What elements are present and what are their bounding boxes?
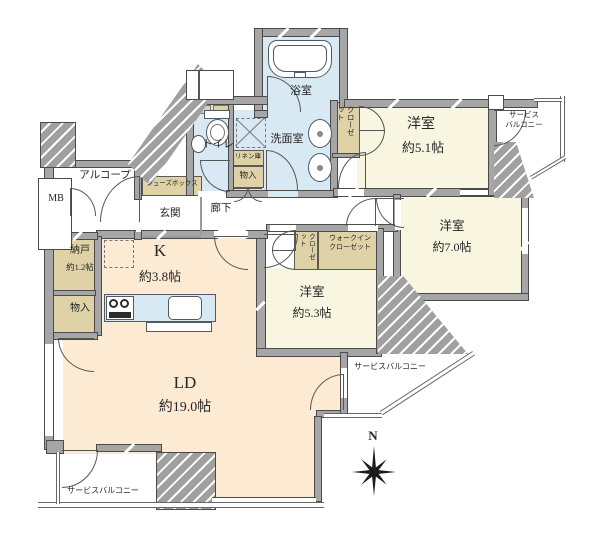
wall-segment <box>339 28 348 108</box>
wall-hatched <box>40 122 76 168</box>
linen-label: リネン庫 <box>233 153 263 161</box>
bathroom-label: 浴室 <box>278 84 324 98</box>
refrigerator-space <box>104 240 134 268</box>
kitchen-sink <box>168 296 202 320</box>
window <box>460 189 488 196</box>
entrance-label: 玄関 <box>146 207 194 221</box>
ld-floor <box>212 452 318 500</box>
bedroom70-size: 約7.0帖 <box>420 240 484 256</box>
balcony-tr-label: サービス バルコニー <box>494 110 554 130</box>
counter-shelf <box>146 322 212 332</box>
storage-left-label: 物入 <box>60 302 100 315</box>
bathtub-inner <box>273 45 327 72</box>
stove-grill <box>109 312 131 318</box>
wic-label: ウォークイン クローゼット <box>319 234 381 252</box>
wall-segment <box>314 416 322 502</box>
door-swing <box>248 188 262 202</box>
balcony-railing <box>534 98 562 102</box>
meter-box <box>38 178 72 250</box>
balcony-railing <box>38 502 324 508</box>
door-swing <box>234 188 248 202</box>
nando-label: 納戸 <box>60 244 100 257</box>
compass <box>346 444 402 500</box>
wash-basin-drain <box>317 131 323 137</box>
closet53-label: クローゼット <box>297 233 315 261</box>
ld-size: 約19.0帖 <box>140 399 230 417</box>
floor-plan: N 浴室 洗面室 トイレ リネン庫 物入 クローゼット 洋室 約5.1帖 サービ… <box>0 0 600 555</box>
wash-basin-drain <box>317 165 323 171</box>
meter-box-label: MB <box>40 192 72 205</box>
wall-segment <box>254 110 268 118</box>
balcony-mid-label: サービスバルコニー <box>332 362 448 372</box>
bedroom51-label: 洋室 <box>397 116 445 134</box>
kitchen-size: 約3.8帖 <box>125 269 195 286</box>
washroom-storage-label: 物入 <box>232 170 264 181</box>
bathtub-handle <box>294 72 306 78</box>
washroom-label: 洗面室 <box>260 132 314 146</box>
balcony-railing <box>530 155 566 179</box>
ld-label: LD <box>155 372 215 394</box>
door-swing <box>70 188 96 216</box>
kitchen-label: K <box>140 240 180 262</box>
balcony-railing <box>324 413 382 418</box>
balcony-door-jamb <box>488 95 504 110</box>
balcony-railing <box>380 351 475 415</box>
entrance-step <box>143 236 201 238</box>
wall-hatched <box>494 142 534 198</box>
window <box>44 344 54 436</box>
toilet-label: トイレ <box>196 138 240 152</box>
alcove-label: アルコープ <box>70 169 140 183</box>
shoebox-label: シューズボックス <box>142 180 202 188</box>
compass-north-label: N <box>360 428 386 445</box>
closet51-label: クローゼット <box>335 106 355 138</box>
compass-star-icon <box>346 444 402 500</box>
open-void-divider <box>198 70 200 100</box>
wall-segment <box>254 28 348 37</box>
door-swing <box>346 198 376 226</box>
door-swing <box>272 250 296 270</box>
door-swing <box>62 450 98 488</box>
toilet-tank <box>204 110 230 119</box>
door-swing <box>272 230 296 250</box>
nando-size: 約1.2帖 <box>52 262 108 273</box>
door-swing <box>100 176 140 222</box>
bedroom51-size: 約5.1帖 <box>390 140 456 157</box>
stove-burner <box>120 299 129 308</box>
bedroom70-label: 洋室 <box>428 218 476 234</box>
bedroom53-label: 洋室 <box>288 284 336 300</box>
stove-burner <box>109 299 118 308</box>
wall-segment <box>256 348 382 357</box>
open-void <box>186 70 234 100</box>
bedroom53-size: 約5.3帖 <box>280 306 344 322</box>
corridor-label: 廊下 <box>198 202 244 216</box>
balcony-railing <box>560 96 565 162</box>
door-opening <box>268 191 298 197</box>
wall-segment <box>344 99 538 108</box>
balcony-bl-label: サービスバルコニー <box>46 486 160 496</box>
